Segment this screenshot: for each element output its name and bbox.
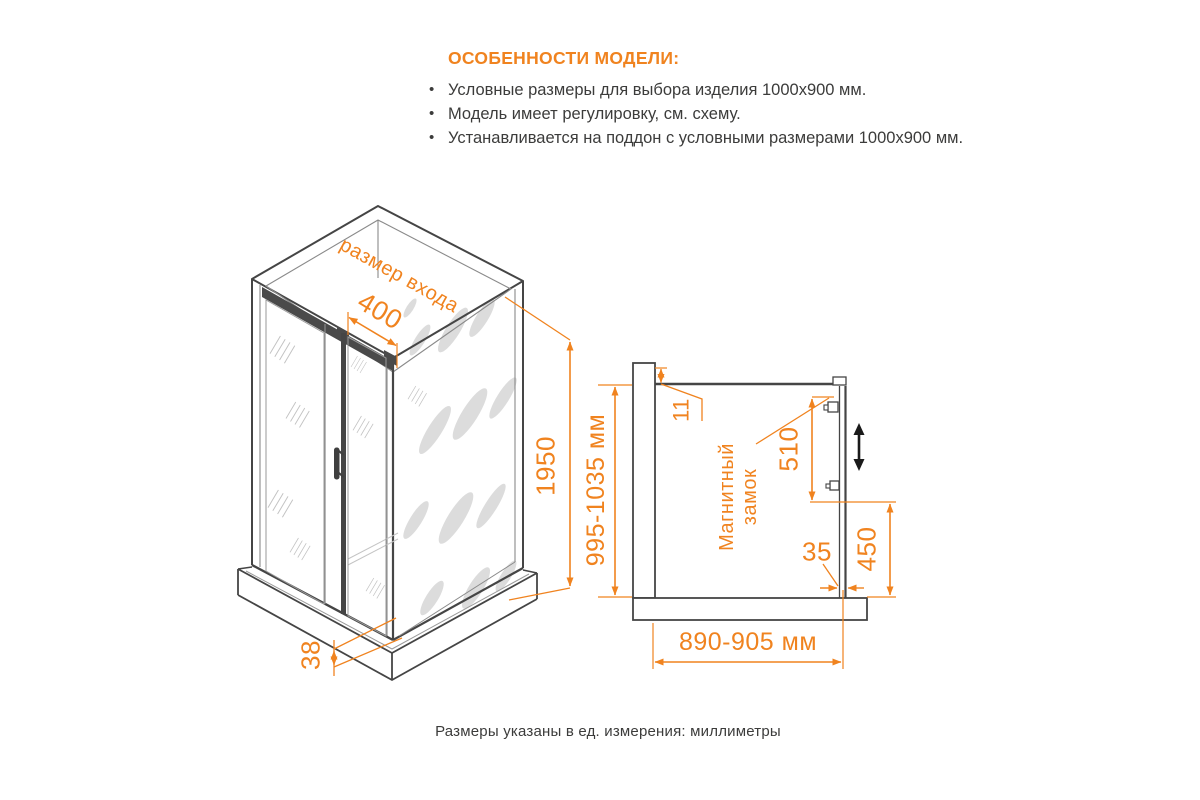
sliding-glass-panel bbox=[348, 337, 386, 636]
bullet-dot: • bbox=[423, 126, 448, 150]
units-note: Размеры указаны в ед. измерения: миллиме… bbox=[0, 723, 1200, 740]
magnetic-lock-line2: замок bbox=[739, 443, 762, 551]
bullet-dot: • bbox=[423, 102, 448, 126]
lock-clamp-top bbox=[828, 402, 838, 412]
door-roller-block bbox=[337, 326, 349, 342]
feature-text: Условные размеры для выбора изделия 1000… bbox=[448, 78, 983, 102]
feature-item: • Устанавливается на поддон с условными … bbox=[423, 126, 983, 150]
diagram-page: ОСОБЕННОСТИ МОДЕЛИ: • Условные размеры д… bbox=[0, 0, 1200, 800]
base-tray bbox=[238, 567, 537, 680]
glass-reflections bbox=[268, 296, 521, 618]
plan-fixed-panel-value: 450 bbox=[853, 527, 880, 572]
plan-magnetic-lock-label: Магнитный замок bbox=[716, 443, 762, 551]
plan-depth-range-value: 995-1035 мм bbox=[583, 414, 609, 566]
bullet-dot: • bbox=[423, 78, 448, 102]
iso-entrance-width-value: 400 bbox=[353, 287, 408, 335]
sliding-door-wall bbox=[262, 287, 397, 636]
plan-profile-gap-value: 11 bbox=[669, 398, 692, 422]
features-title: ОСОБЕННОСТИ МОДЕЛИ: bbox=[423, 48, 983, 69]
slide-direction-arrow-icon bbox=[854, 423, 865, 471]
plan-lock-span-value: 510 bbox=[775, 427, 802, 472]
plan-bottom-gap-value: 35 bbox=[802, 538, 832, 565]
feature-item: • Условные размеры для выбора изделия 10… bbox=[423, 78, 983, 102]
plan-width-range-value: 890-905 мм bbox=[679, 629, 817, 655]
feature-item: • Модель имеет регулировку, см. схему. bbox=[423, 102, 983, 126]
feature-text: Модель имеет регулировку, см. схему. bbox=[448, 102, 983, 126]
iso-base-height-value: 38 bbox=[297, 640, 324, 670]
corner-bracket bbox=[384, 350, 397, 366]
feature-text: Устанавливается на поддон с условными ра… bbox=[448, 126, 983, 150]
lock-clamp-bottom bbox=[830, 481, 839, 490]
magnetic-lock-line1: Магнитный bbox=[716, 443, 739, 551]
fixed-glass-panel bbox=[266, 300, 324, 604]
door-handle bbox=[335, 448, 344, 479]
features-block: ОСОБЕННОСТИ МОДЕЛИ: • Условные размеры д… bbox=[423, 48, 983, 150]
iso-height-value: 1950 bbox=[532, 436, 559, 496]
